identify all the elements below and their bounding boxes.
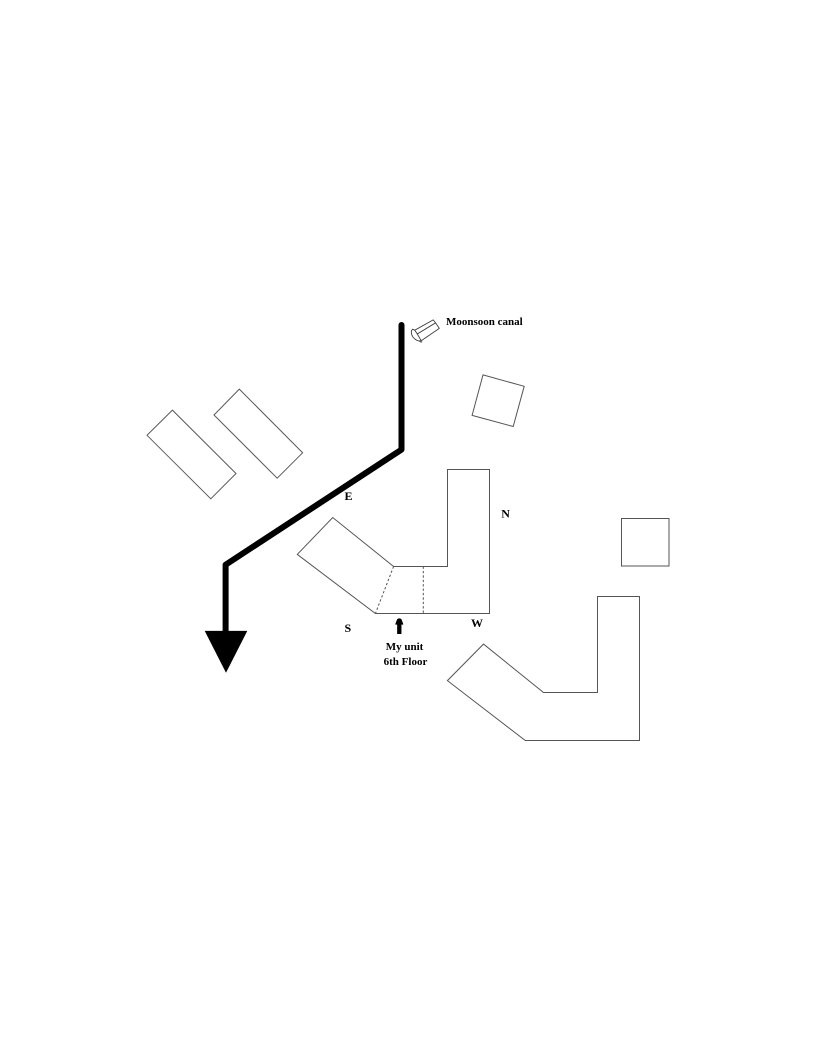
svg-text:N: N (501, 507, 510, 521)
svg-text:Moonsoon canal: Moonsoon canal (446, 316, 523, 328)
svg-text:W: W (471, 616, 483, 630)
svg-text:My unit: My unit (386, 641, 424, 653)
svg-text:6th Floor: 6th Floor (384, 656, 428, 668)
svg-text:S: S (345, 621, 352, 635)
svg-text:E: E (345, 489, 353, 503)
